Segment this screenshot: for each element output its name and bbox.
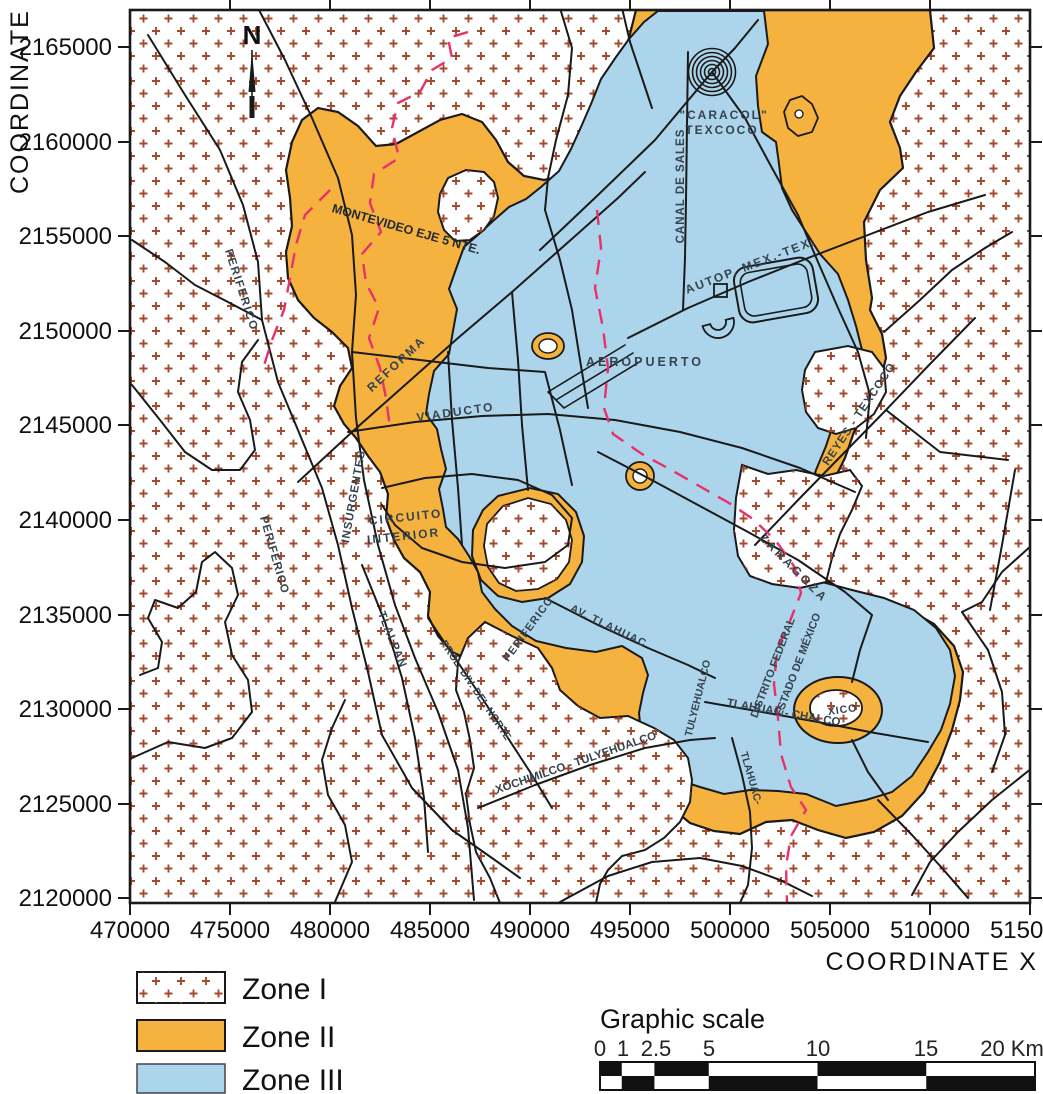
y-tick-label: 2125000	[19, 791, 112, 818]
y-tick-label: 2155000	[19, 223, 112, 250]
x-tick-label: 495000	[590, 917, 670, 944]
x-tick-label: 510000	[890, 917, 970, 944]
legend: Zone I Zone II Zone III	[137, 972, 344, 1094]
x-tick-label: 505000	[790, 917, 870, 944]
graphic-scale: Graphic scale 0 1 2.5 5 10 15 20 Km	[594, 1004, 1043, 1090]
scale-tick-label: 20 Km	[980, 1036, 1043, 1061]
scale-tick-label: 0	[594, 1036, 606, 1061]
x-tick-label: 515000	[990, 917, 1043, 944]
scale-tick-label: 5	[703, 1036, 715, 1061]
x-tick-label: 485000	[390, 917, 470, 944]
legend-label-zone3: Zone III	[242, 1064, 344, 1094]
y-tick-label: 2140000	[19, 507, 112, 534]
scale-bar	[600, 1062, 1035, 1090]
x-axis-labels: 470000 475000 480000 485000 490000 49500…	[90, 917, 1043, 944]
legend-label-zone2: Zone II	[242, 1021, 335, 1054]
y-tick-label: 2120000	[19, 885, 112, 912]
x-tick-label: 500000	[690, 917, 770, 944]
y-tick-label: 2135000	[19, 602, 112, 629]
y-tick-label: 2145000	[19, 412, 112, 439]
geotechnical-zonation-map: N MONTEVIDEO EJE 5 NTE. PERIFERICO REFOR…	[0, 0, 1043, 1094]
map-canvas: N MONTEVIDEO EJE 5 NTE. PERIFERICO REFOR…	[0, 0, 1043, 1094]
scale-tick-label: 10	[806, 1036, 830, 1061]
label-aeropuerto: AEROPUERTO	[586, 355, 704, 369]
scale-tick-label: 15	[914, 1036, 938, 1061]
x-tick-label: 475000	[190, 917, 270, 944]
legend-label-zone1: Zone I	[242, 973, 327, 1006]
map-content: N MONTEVIDEO EJE 5 NTE. PERIFERICO REFOR…	[130, 8, 1032, 903]
label-caracol: "CARACOL"	[679, 108, 768, 122]
x-tick-label: 470000	[90, 917, 170, 944]
x-tick-label: 480000	[290, 917, 370, 944]
y-tick-label: 2130000	[19, 696, 112, 723]
scale-tick-label: 1	[617, 1036, 629, 1061]
label-canal-de-sales: CANAL DE SALES	[675, 129, 687, 244]
x-tick-label: 490000	[490, 917, 570, 944]
graphic-scale-title: Graphic scale	[600, 1004, 765, 1034]
north-arrow-label: N	[243, 20, 262, 50]
y-tick-label: 2150000	[19, 318, 112, 345]
y-axis-title: COORDINATE Y	[6, 0, 34, 194]
label-texcoco: TEXCOCO	[685, 123, 758, 137]
legend-swatch-zone2	[137, 1020, 225, 1051]
x-axis-title: COORDINATE X	[826, 948, 1038, 976]
scale-tick-label: 2.5	[641, 1036, 672, 1061]
legend-swatch-zone3	[137, 1064, 225, 1093]
